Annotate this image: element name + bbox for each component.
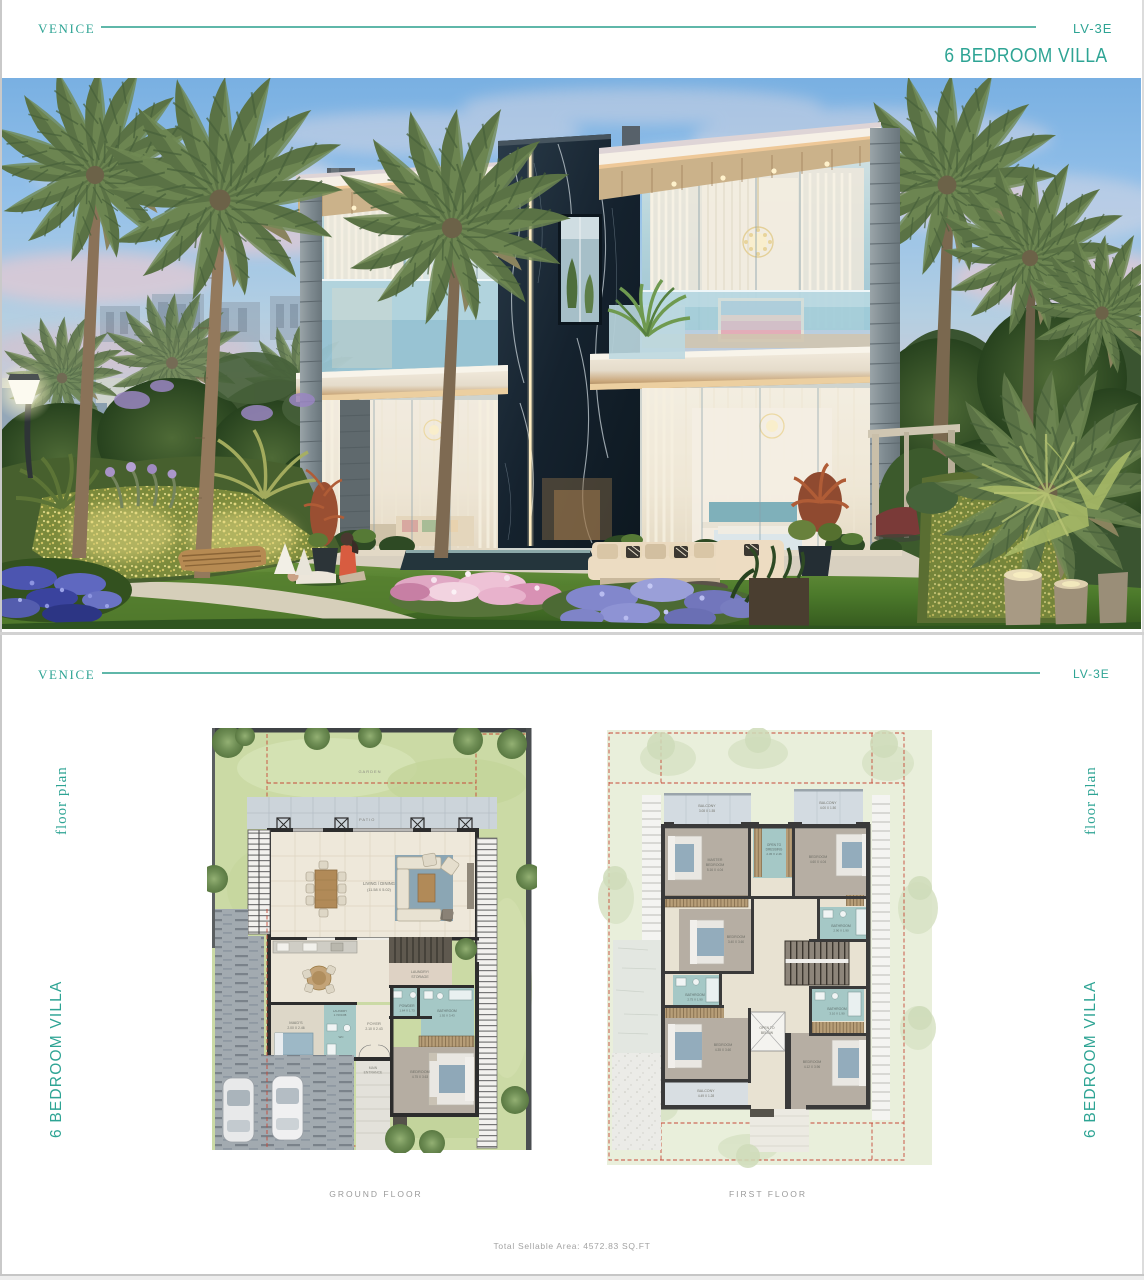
svg-text:4.49 X 1.28: 4.49 X 1.28 xyxy=(698,1094,715,1098)
svg-text:LIVING / DINING: LIVING / DINING xyxy=(363,881,395,886)
svg-text:2.00 X 2.46: 2.00 X 2.46 xyxy=(287,1026,304,1030)
svg-text:MASTER: MASTER xyxy=(708,858,723,862)
svg-text:3.10 X 1.90: 3.10 X 1.90 xyxy=(829,1012,845,1016)
svg-text:BATHROOM: BATHROOM xyxy=(831,924,851,928)
svg-text:BEDROOM: BEDROOM xyxy=(803,1060,822,1064)
svg-text:GARDEN: GARDEN xyxy=(358,769,381,774)
svg-text:4.75 X 3.63: 4.75 X 3.63 xyxy=(412,1075,429,1079)
svg-text:3.08 X 1.55: 3.08 X 1.55 xyxy=(699,809,716,813)
svg-text:BEDROOM: BEDROOM xyxy=(727,935,746,939)
svg-text:PATIO: PATIO xyxy=(359,817,375,822)
svg-text:4.35 X 3.60: 4.35 X 3.60 xyxy=(715,1048,732,1052)
svg-text:DRESSING: DRESSING xyxy=(766,848,783,852)
svg-text:BALCONY: BALCONY xyxy=(697,1089,715,1093)
svg-text:FOYER: FOYER xyxy=(367,1021,381,1026)
svg-text:BALCONY: BALCONY xyxy=(698,804,716,808)
svg-text:BALCONY: BALCONY xyxy=(819,801,837,805)
svg-text:1.92 X 3.43: 1.92 X 3.43 xyxy=(439,1014,455,1018)
svg-text:2.10 X 2.43: 2.10 X 2.43 xyxy=(365,1027,382,1031)
svg-text:2.45 X 2.46: 2.45 X 2.46 xyxy=(766,852,782,856)
svg-text:4.60 X 4.04: 4.60 X 4.04 xyxy=(810,860,827,864)
svg-text:BATHROOM: BATHROOM xyxy=(827,1007,847,1011)
svg-text:BATHROOM: BATHROOM xyxy=(437,1009,457,1013)
svg-text:5.16 X 4.04: 5.16 X 4.04 xyxy=(707,868,724,872)
svg-text:(11.58 X 5.02): (11.58 X 5.02) xyxy=(367,888,392,892)
svg-text:WC: WC xyxy=(339,1035,345,1039)
svg-text:OPEN TO: OPEN TO xyxy=(759,1026,774,1030)
svg-text:4.12 X 3.96: 4.12 X 3.96 xyxy=(804,1065,821,1069)
svg-text:LAUNDRY/: LAUNDRY/ xyxy=(411,970,429,974)
svg-text:BEDROOM: BEDROOM xyxy=(809,855,828,859)
svg-text:2.75 X 1.90: 2.75 X 1.90 xyxy=(687,998,703,1002)
svg-text:MAID'S: MAID'S xyxy=(289,1020,303,1025)
svg-text:STORAGE: STORAGE xyxy=(411,975,429,979)
svg-text:1.64 X 1.73: 1.64 X 1.73 xyxy=(399,1009,415,1013)
svg-text:POWDER: POWDER xyxy=(399,1004,415,1008)
svg-text:OPEN TO: OPEN TO xyxy=(767,843,782,847)
svg-text:MAIN: MAIN xyxy=(369,1066,378,1070)
svg-text:4.00 X 1.50: 4.00 X 1.50 xyxy=(820,806,837,810)
svg-text:BEDROOM: BEDROOM xyxy=(706,863,725,867)
svg-text:BEDROOM: BEDROOM xyxy=(410,1070,430,1074)
svg-text:ENTRANCE: ENTRANCE xyxy=(364,1071,383,1075)
svg-text:1.72X0.88: 1.72X0.88 xyxy=(334,1013,347,1017)
svg-text:2.90 X 1.90: 2.90 X 1.90 xyxy=(833,929,849,933)
svg-text:BEDROOM: BEDROOM xyxy=(714,1043,733,1047)
svg-text:3.40 X 3.60: 3.40 X 3.60 xyxy=(728,940,745,944)
svg-text:BELOW: BELOW xyxy=(761,1031,774,1035)
svg-text:BATHROOM: BATHROOM xyxy=(685,993,705,997)
